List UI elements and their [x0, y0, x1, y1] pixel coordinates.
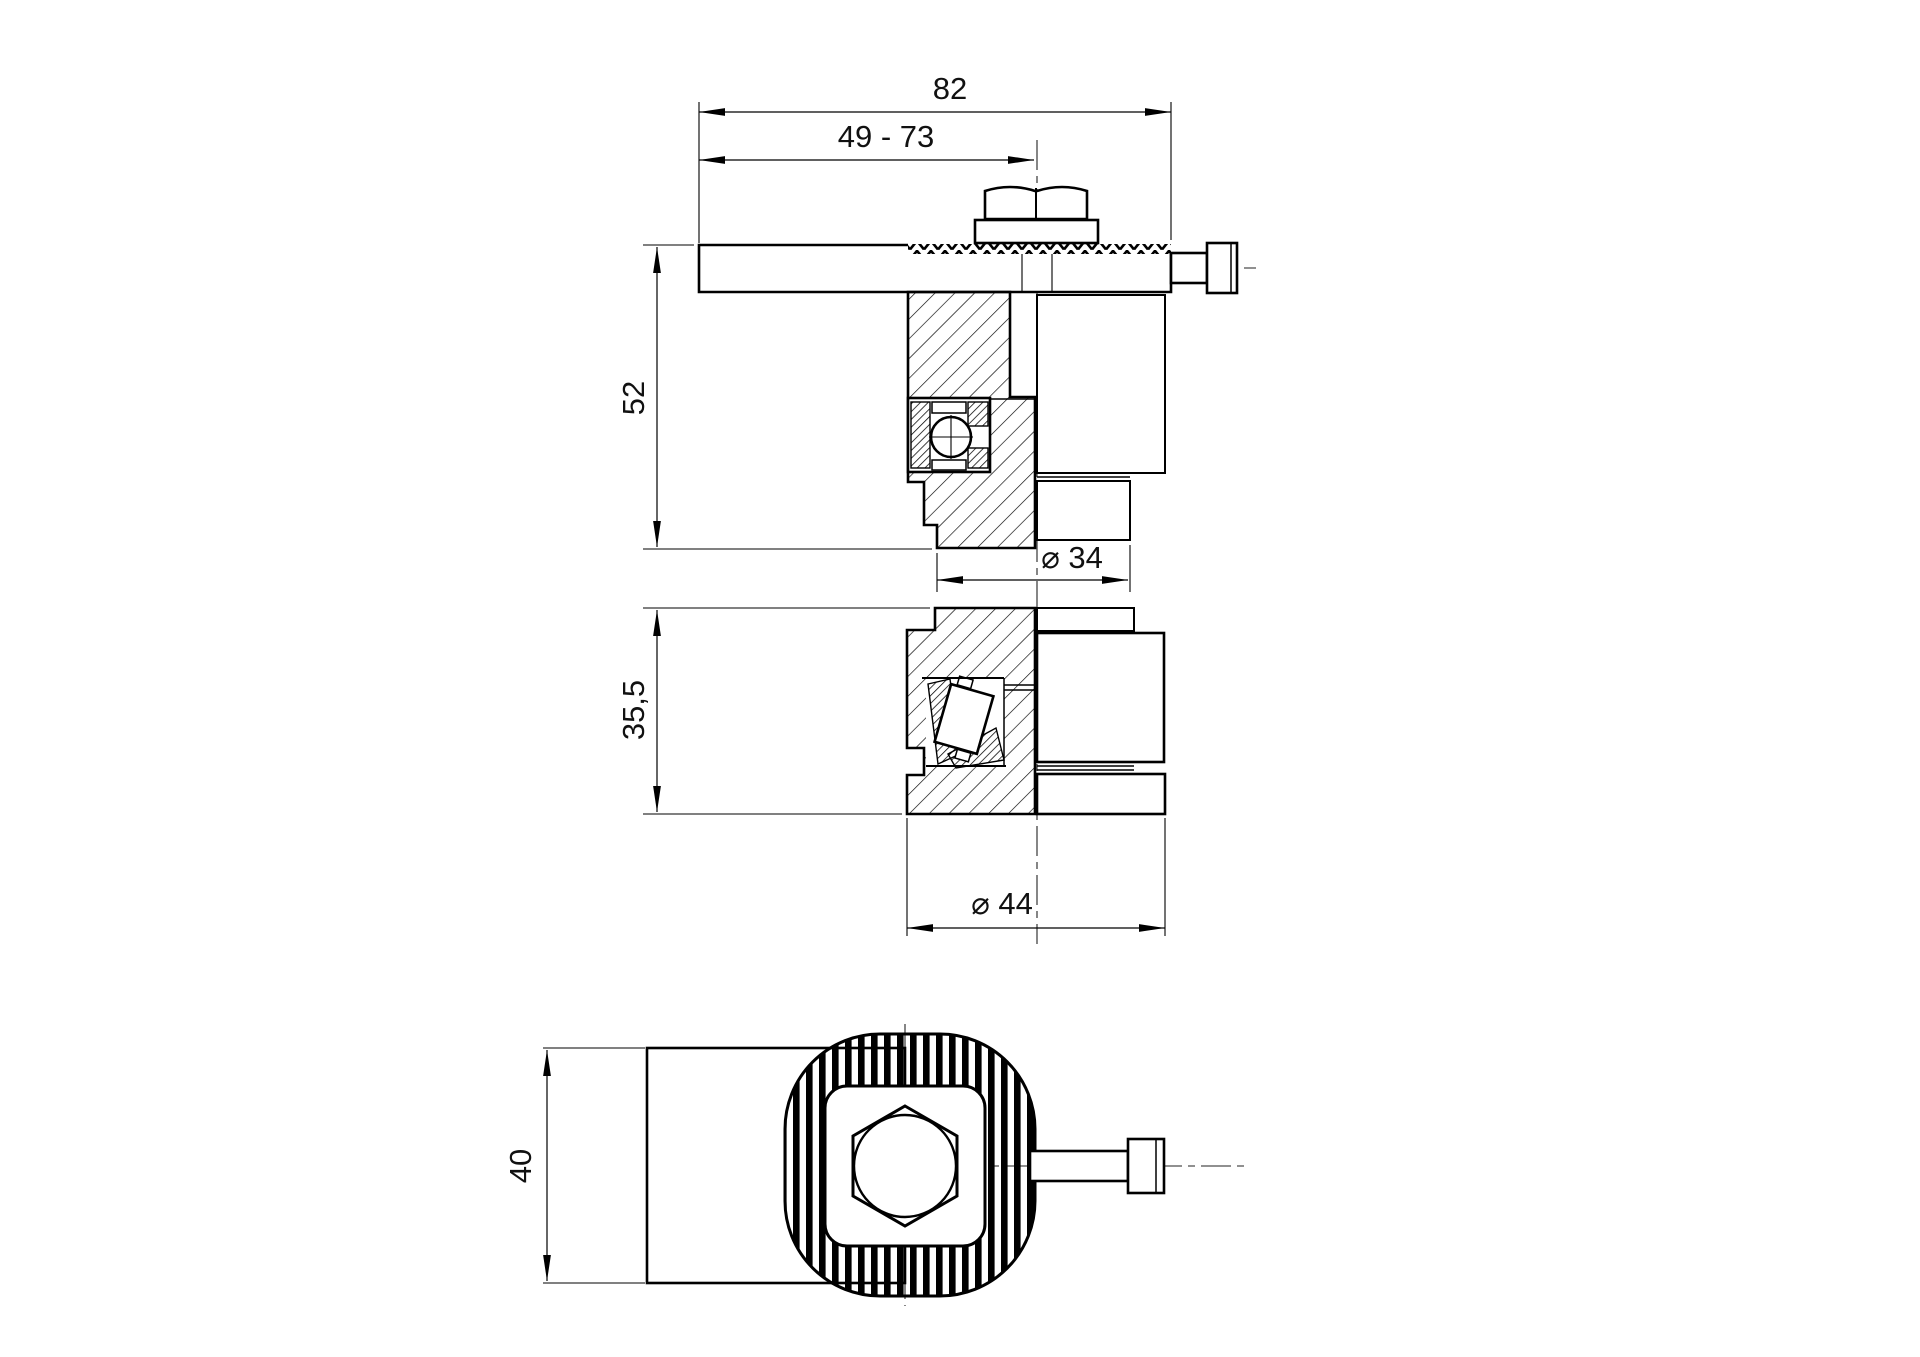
side-screw-shank [1030, 1151, 1128, 1181]
dimension-label-flange-diameter: ⌀ 44 [971, 886, 1033, 921]
middle-section-view [907, 608, 1165, 814]
bearing-outer-ring-top [968, 402, 988, 426]
dimension-label-overall-width: 82 [933, 71, 967, 106]
dimension-label-arm-width: 40 [503, 1149, 538, 1183]
housing-elevation [1037, 633, 1164, 762]
side-screw-shank [1171, 253, 1207, 283]
housing-elevation [1037, 295, 1165, 473]
bearing-inner-ring [911, 402, 930, 468]
dimension-label-boss-diameter: ⌀ 34 [1041, 540, 1103, 575]
bearing-cage-bottom [932, 460, 966, 470]
side-screw-head [1207, 243, 1237, 293]
boss-flange-elevation [1037, 481, 1130, 540]
flange-elevation [1037, 774, 1165, 814]
side-screw-head [1128, 1139, 1164, 1193]
ball-bearing-section [908, 398, 990, 472]
technical-drawing-canvas: 82 49 - 73 52 ⌀ 34 35,5 ⌀ 44 40 [0, 0, 1920, 1357]
dimension-label-total-height: 52 [616, 381, 651, 415]
bottom-view [647, 1034, 1164, 1296]
serrated-washer [975, 220, 1098, 243]
dimension-label-variant-height: 35,5 [616, 680, 651, 740]
serration-teeth [908, 244, 1171, 254]
bearing-cage-top [932, 402, 966, 413]
technical-drawing-page: 82 49 - 73 52 ⌀ 34 35,5 ⌀ 44 40 [0, 0, 1920, 1357]
dimension-label-adjust-range: 49 - 73 [838, 119, 935, 154]
spigot-elevation [1037, 608, 1134, 631]
top-section-view [699, 187, 1237, 548]
side-screw [1171, 243, 1237, 293]
bearing-outer-ring-bottom [968, 448, 988, 468]
